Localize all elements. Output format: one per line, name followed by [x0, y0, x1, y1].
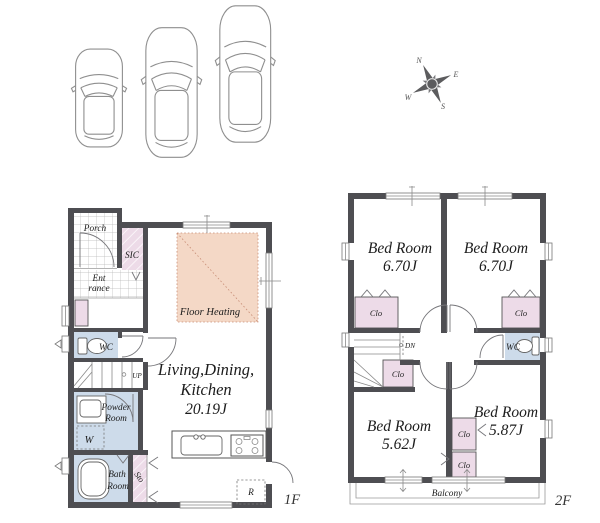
parking-cars — [71, 6, 275, 157]
label-wc-1f: WC — [99, 343, 114, 353]
label-clo-bed3: Clo — [458, 460, 470, 470]
label-ldk-2: Kitchen — [179, 380, 231, 399]
label-bed3-size: 5.62J — [382, 436, 417, 453]
compass-n-label: N — [415, 56, 422, 65]
car-medium-icon — [141, 28, 201, 158]
floorplan-image: N E S W — [0, 0, 600, 523]
compass-star-icon — [404, 56, 460, 112]
compass-rose: N E S W — [404, 56, 460, 112]
label-balcony: Balcony — [432, 489, 463, 499]
label-bed3-name: Bed Room — [367, 418, 431, 435]
label-bed2-size: 6.70J — [479, 258, 514, 275]
label-clo-bed1: Clo — [370, 308, 382, 318]
toilet-tank-1f — [78, 338, 87, 354]
compass-s-label: S — [441, 102, 445, 111]
label-bed1-name: Bed Room — [368, 240, 432, 257]
closet-door-marks-bed2 — [508, 290, 536, 297]
label-entrance-2: rance — [88, 284, 109, 294]
stove — [231, 435, 263, 456]
label-clo-hall: Clo — [392, 369, 404, 379]
label-floor-heating: Floor Heating — [179, 307, 240, 318]
closet-door-mark-bed4 — [478, 424, 486, 436]
toilet-tank-2f — [532, 337, 539, 355]
label-washer: W — [85, 435, 95, 446]
label-fridge: R — [247, 488, 254, 498]
label-bed4-size: 5.87J — [489, 422, 524, 439]
label-dn: DN — [404, 342, 416, 350]
label-porch: Porch — [83, 224, 107, 234]
label-bed2-name: Bed Room — [464, 240, 528, 257]
shoe-cabinet — [75, 300, 88, 326]
label-bath-2: Room — [106, 482, 129, 492]
label-powder-2: Room — [104, 414, 127, 424]
compass-e-label: E — [453, 70, 459, 79]
floor1-room-fills — [74, 213, 258, 502]
label-clo-bed4: Clo — [458, 429, 470, 439]
label-up: UP — [132, 372, 142, 380]
stairs-up — [74, 362, 132, 388]
compass-w-label: W — [405, 93, 413, 102]
label-ldk-size: 20.19J — [185, 401, 228, 418]
car-small-icon — [71, 49, 126, 147]
label-powder-1: Powder — [101, 403, 131, 413]
car-large-icon — [215, 6, 275, 142]
label-bath-1: Bath — [108, 470, 126, 480]
label-ldk-1: Living,Dining, — [157, 360, 254, 379]
floor2-label: 2F — [555, 493, 571, 509]
label-wc-2f: WC — [506, 343, 521, 353]
label-bed1-size: 6.70J — [383, 258, 418, 275]
faucet — [194, 435, 198, 439]
label-entrance-1: Ent — [92, 274, 106, 284]
closet-door-marks-bed1 — [361, 290, 391, 297]
label-bed4-name: Bed Room — [474, 404, 538, 421]
floor-plan-1f: Porch SIC Ent rance WC UP Powder Room W … — [55, 208, 300, 508]
label-clo-bed2: Clo — [515, 308, 527, 318]
storage-door-marks — [149, 457, 158, 503]
label-sic: SIC — [125, 251, 140, 261]
floor1-label: 1F — [284, 492, 300, 508]
floor-plan-2f: Bed Room 6.70J Bed Room 6.70J Bed Room 5… — [342, 186, 571, 509]
